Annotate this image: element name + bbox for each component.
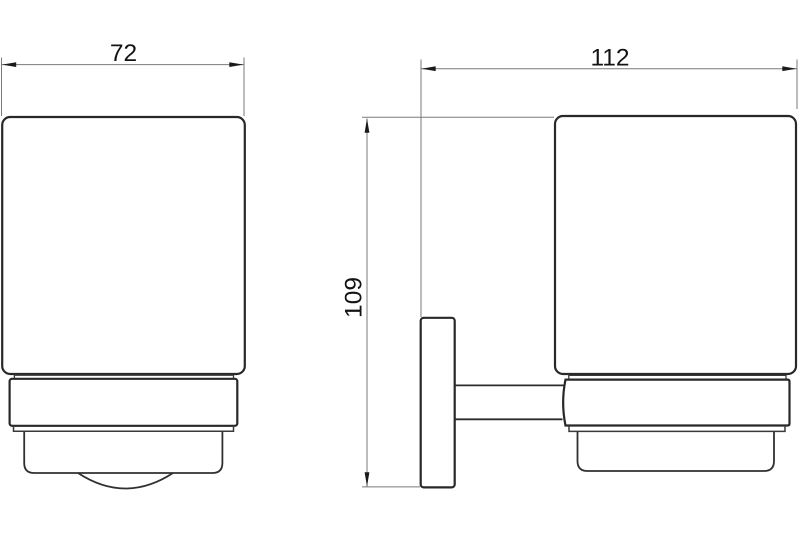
- svg-text:72: 72: [110, 40, 137, 67]
- svg-text:112: 112: [590, 45, 629, 72]
- svg-text:109: 109: [341, 277, 368, 318]
